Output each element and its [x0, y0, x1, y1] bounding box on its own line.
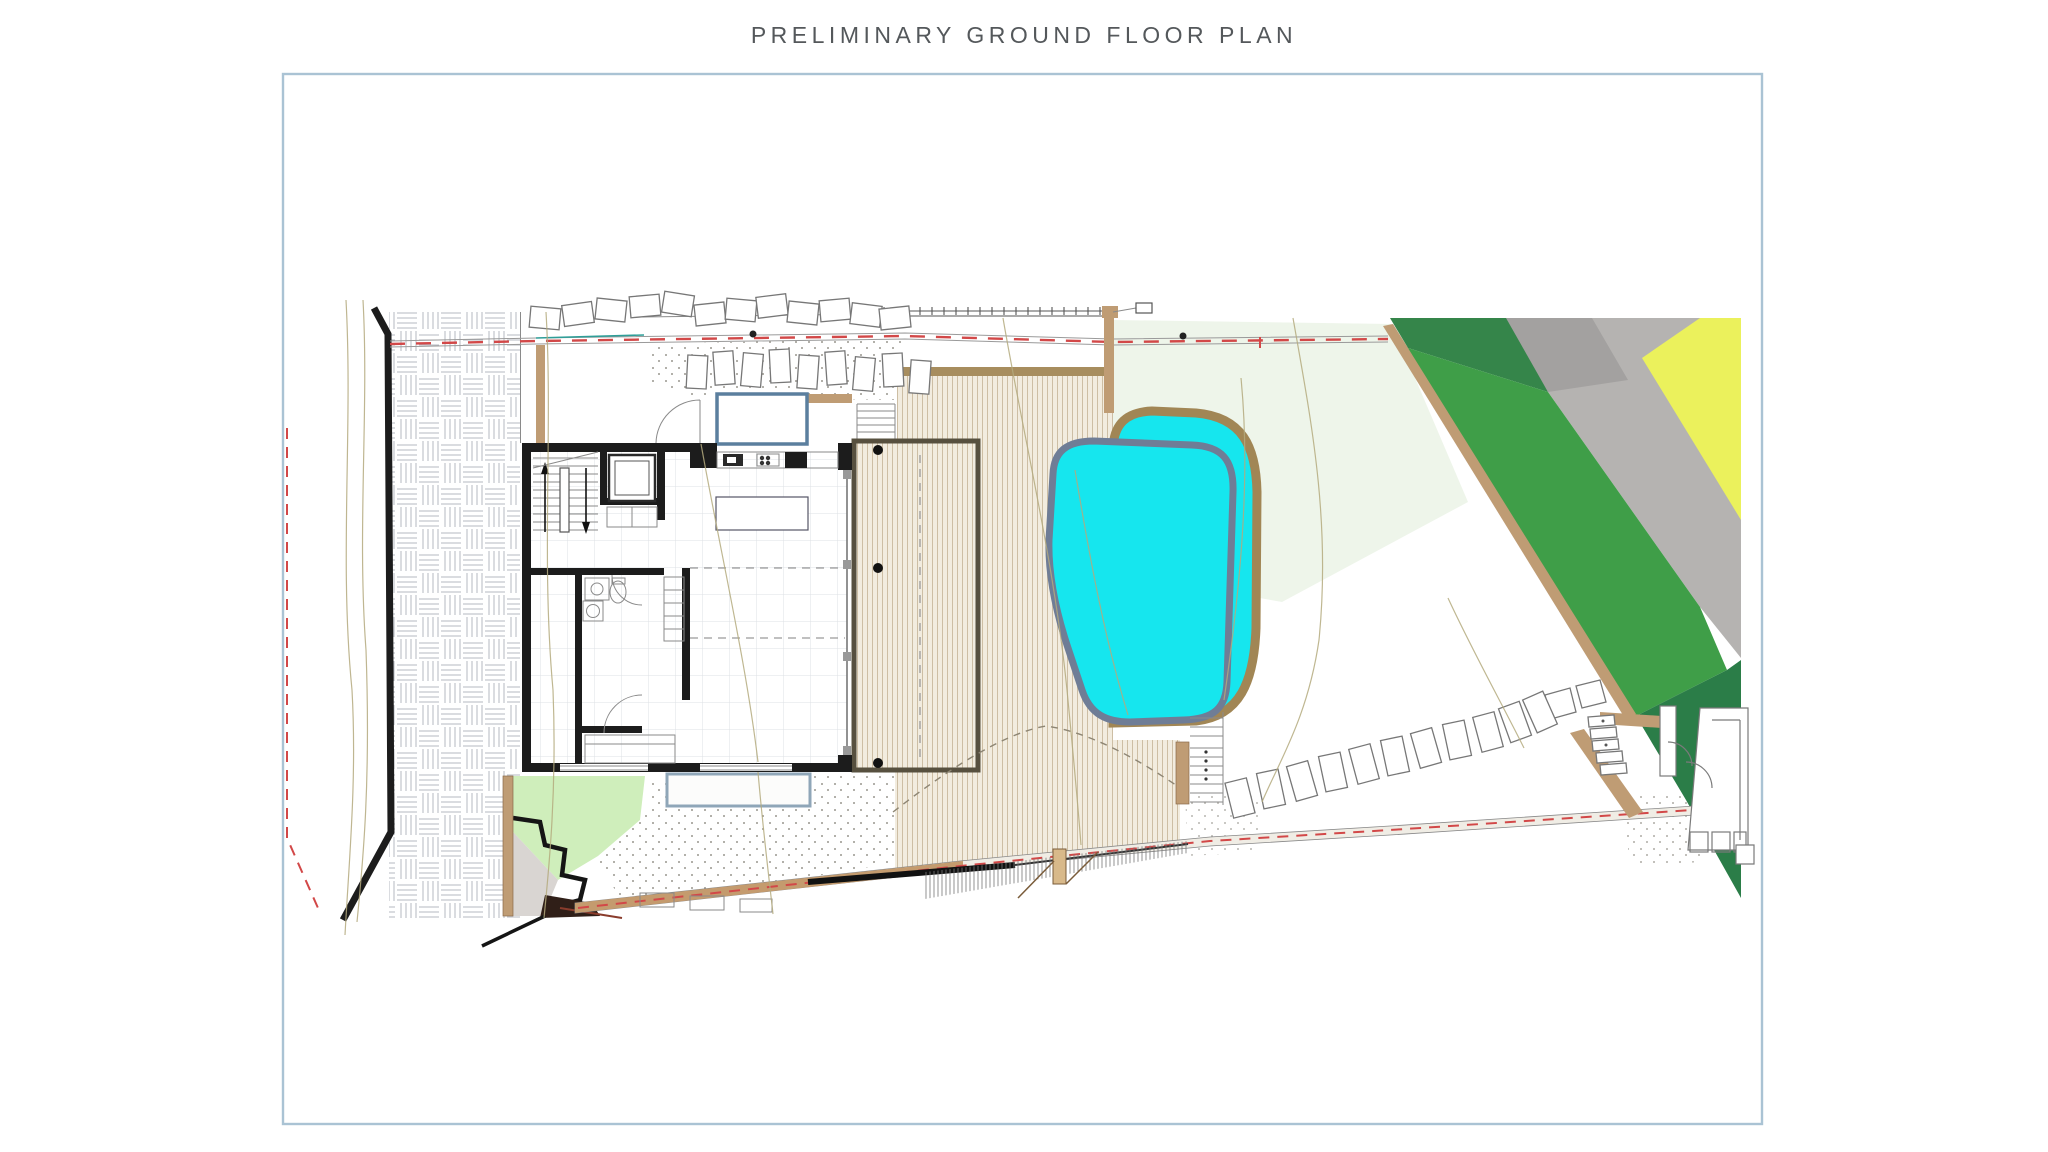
survey-marker	[1136, 303, 1152, 313]
outdoor-stair-pool	[1176, 712, 1223, 805]
deck-stair-upper	[857, 404, 895, 440]
left-boundary-wall	[343, 308, 391, 920]
swimming-pool	[1049, 411, 1257, 723]
stepping-stones-lower	[1225, 691, 1557, 818]
tall-unit	[785, 452, 807, 468]
driveway-pavers	[389, 312, 520, 918]
property-line-left	[287, 428, 318, 908]
page: PRELIMINARY GROUND FLOOR PLAN	[0, 0, 2048, 1152]
skylight	[717, 394, 807, 444]
column	[873, 758, 883, 768]
door-swing	[656, 400, 700, 443]
column	[873, 563, 883, 573]
stepping-stones-top	[529, 291, 911, 330]
boundary-peg	[750, 331, 757, 338]
kitchen-island	[716, 497, 808, 530]
column	[873, 445, 883, 455]
residence-floor-plan	[522, 345, 852, 772]
site-plan-svg	[0, 0, 2048, 1152]
deck-edge-right	[1104, 318, 1114, 413]
pool-basin	[1049, 441, 1233, 722]
light-well	[667, 774, 810, 806]
boundary-peg	[1180, 333, 1187, 340]
